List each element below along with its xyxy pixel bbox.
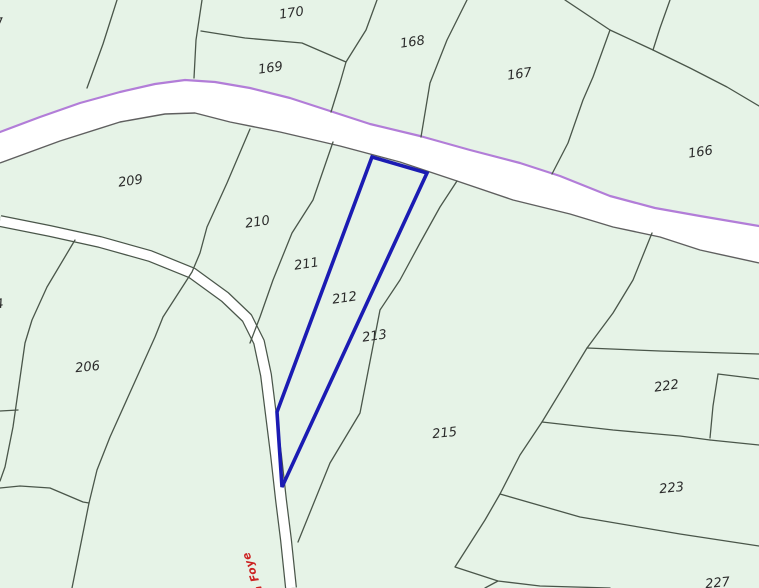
- parcel-label-227: 227: [705, 575, 732, 588]
- map-background: [0, 0, 759, 588]
- map-canvas: 7 170 169 168 167 166 209 210 211 212 21…: [0, 0, 759, 588]
- parcel-label-215: 215: [432, 425, 458, 443]
- parcel-label-206: 206: [75, 359, 101, 377]
- cadastral-map[interactable]: 7 170 169 168 167 166 209 210 211 212 21…: [0, 0, 759, 588]
- parcel-label-223: 223: [659, 480, 685, 498]
